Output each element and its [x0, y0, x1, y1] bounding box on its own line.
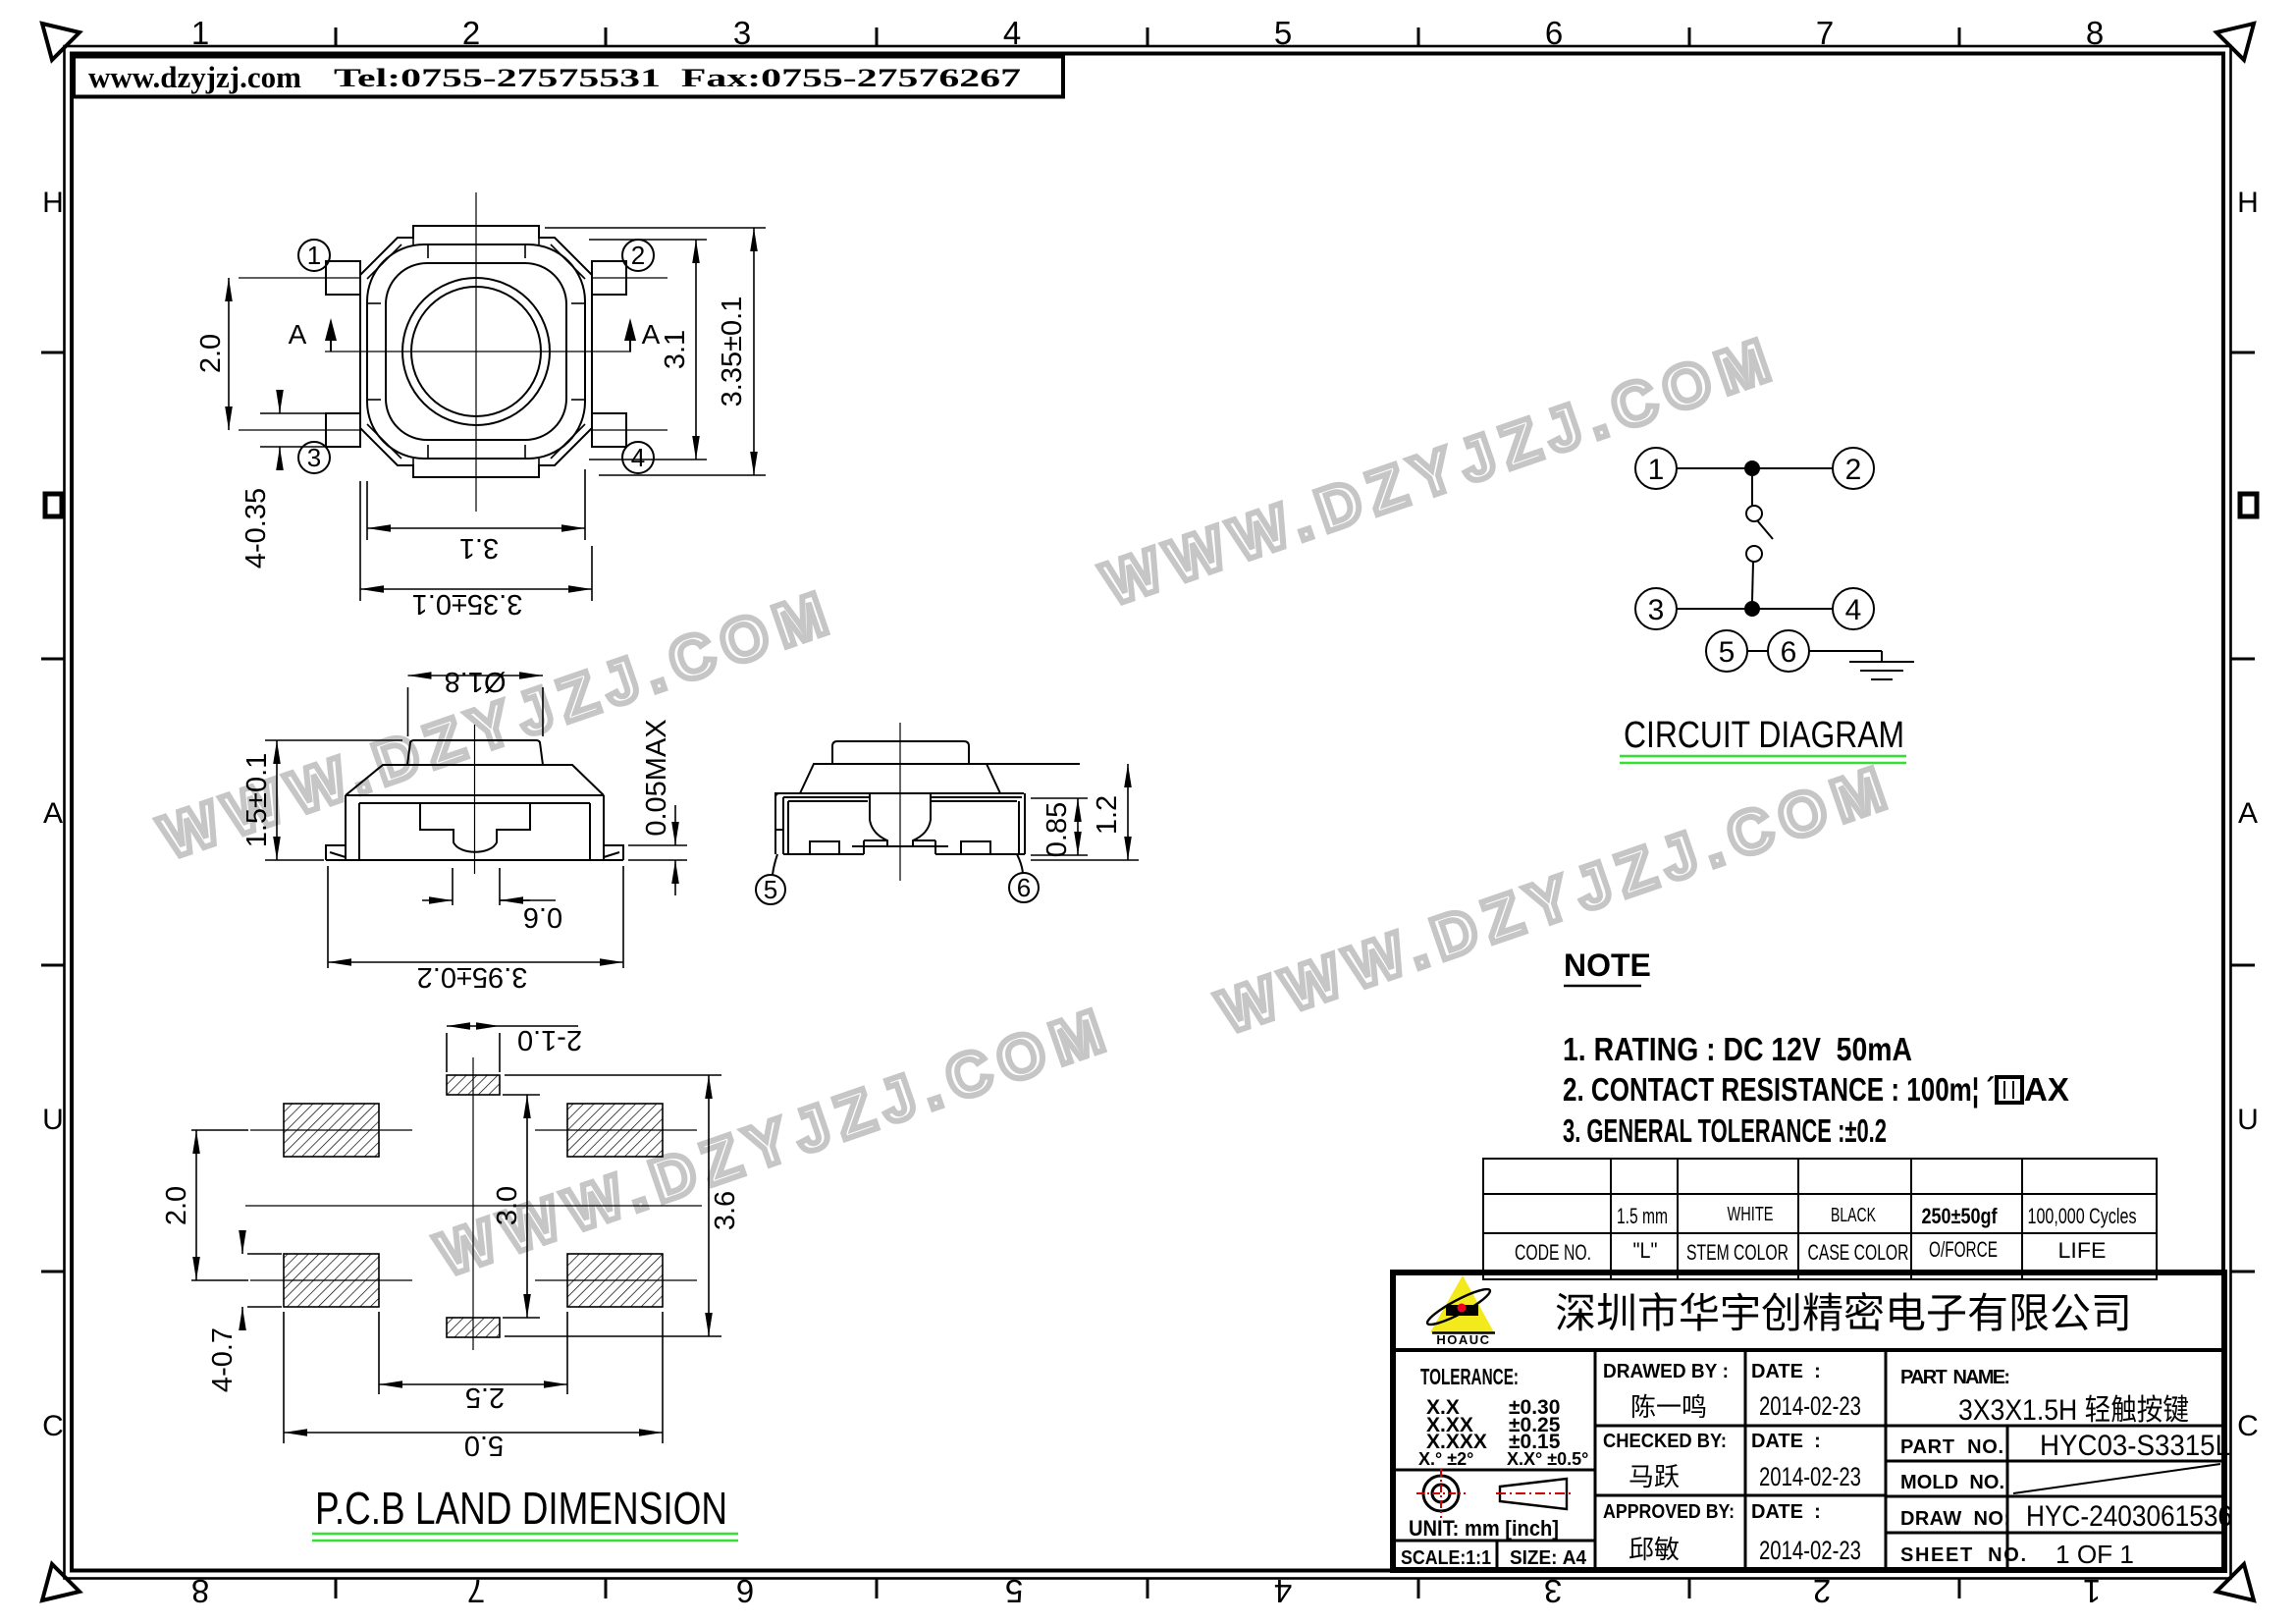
svg-text:1.5 mm: 1.5 mm — [1617, 1204, 1668, 1228]
svg-text:A: A — [43, 797, 63, 830]
svg-text:7: 7 — [1816, 15, 1834, 51]
svg-text:4-0.7: 4-0.7 — [207, 1327, 239, 1392]
svg-text:3: 3 — [1544, 1573, 1562, 1609]
svg-text:3: 3 — [733, 15, 751, 51]
svg-text:2-1.0: 2-1.0 — [517, 1024, 582, 1056]
svg-text:Ø1.8: Ø1.8 — [445, 666, 507, 697]
svg-text:8: 8 — [191, 1573, 209, 1609]
svg-text:BLACK: BLACK — [1831, 1205, 1876, 1226]
svg-text:6: 6 — [1545, 15, 1563, 51]
svg-text:CODE NO.: CODE NO. — [1515, 1240, 1591, 1265]
svg-text:0.85: 0.85 — [1041, 802, 1073, 857]
svg-text:HYC-2403061536: HYC-2403061536 — [2026, 1500, 2232, 1533]
svg-text:STEM COLOR: STEM COLOR — [1686, 1240, 1789, 1265]
svg-text:5: 5 — [1719, 636, 1735, 669]
svg-text:6: 6 — [1781, 636, 1797, 669]
svg-text:1 OF 1: 1 OF 1 — [2056, 1540, 2134, 1569]
svg-text:2.0: 2.0 — [161, 1186, 192, 1225]
svg-text:1: 1 — [191, 15, 209, 51]
svg-text:O/FORCE: O/FORCE — [1929, 1237, 1998, 1262]
svg-text:PART NO.: PART NO. — [1900, 1436, 2003, 1458]
svg-text:2014-02-23: 2014-02-23 — [1759, 1536, 1861, 1565]
svg-text:H: H — [2237, 187, 2259, 219]
svg-text:3: 3 — [1648, 594, 1665, 626]
svg-text:2: 2 — [631, 241, 645, 270]
svg-text:4-0.35: 4-0.35 — [240, 488, 272, 568]
svg-text:3.95±0.2: 3.95±0.2 — [417, 961, 528, 993]
svg-text:马跃: 马跃 — [1629, 1462, 1680, 1491]
svg-text:1.5±0.1: 1.5±0.1 — [241, 753, 273, 848]
svg-text:Tel:0755-27575531 Fax:0755-27: Tel:0755-27575531 Fax:0755-27576267 — [334, 64, 1021, 92]
svg-text:2: 2 — [1845, 454, 1862, 486]
svg-text:2014-02-23: 2014-02-23 — [1759, 1391, 1861, 1421]
svg-text:1: 1 — [2083, 1573, 2101, 1609]
svg-text:4: 4 — [1003, 15, 1021, 51]
svg-text:2: 2 — [1813, 1573, 1831, 1609]
svg-text:MOLD NO.: MOLD NO. — [1900, 1472, 2004, 1493]
svg-text:U: U — [42, 1104, 64, 1136]
svg-text:3.1: 3.1 — [459, 532, 499, 564]
svg-text:3. GENERAL TOLERANCE :±0.2: 3. GENERAL TOLERANCE :±0.2 — [1563, 1112, 1887, 1149]
svg-text:2: 2 — [462, 15, 480, 51]
svg-text:C: C — [2237, 1410, 2259, 1442]
svg-text:0.6: 0.6 — [523, 901, 562, 933]
svg-text:2014-02-23: 2014-02-23 — [1759, 1462, 1861, 1491]
svg-text:X.° ±2°: X.° ±2° — [1418, 1449, 1473, 1469]
svg-text:SIZE: A4: SIZE: A4 — [1510, 1547, 1587, 1569]
svg-text:5: 5 — [1274, 15, 1292, 51]
svg-text:CASE COLOR: CASE COLOR — [1808, 1240, 1909, 1265]
svg-text:3.1: 3.1 — [660, 330, 691, 369]
svg-text:APPROVED BY:: APPROVED BY: — [1603, 1501, 1735, 1523]
svg-text:邱敏: 邱敏 — [1629, 1535, 1680, 1564]
svg-text:6: 6 — [736, 1573, 754, 1609]
svg-text:A: A — [642, 319, 661, 350]
svg-text:C: C — [42, 1410, 64, 1442]
svg-text:U: U — [2237, 1104, 2259, 1136]
svg-text:6: 6 — [1017, 873, 1031, 902]
svg-text:P.C.B LAND DIMENSION: P.C.B LAND DIMENSION — [315, 1483, 727, 1534]
svg-text:5: 5 — [1005, 1573, 1023, 1609]
svg-text:DATE :: DATE : — [1751, 1501, 1821, 1523]
svg-text:2.5: 2.5 — [465, 1381, 505, 1413]
svg-text:1: 1 — [1648, 454, 1665, 486]
svg-text:HYC03-S3315L: HYC03-S3315L — [2040, 1430, 2230, 1462]
svg-text:3.0: 3.0 — [492, 1186, 523, 1225]
svg-text:7: 7 — [467, 1573, 485, 1609]
svg-text:PART NAME:: PART NAME: — [1900, 1367, 2010, 1388]
svg-text:SHEET NO.: SHEET NO. — [1900, 1544, 2026, 1566]
svg-text:AX: AX — [2024, 1071, 2069, 1108]
svg-text:1. RATING : DC 12V 50mA: 1. RATING : DC 12V 50mA — [1563, 1031, 1912, 1067]
svg-text:深圳市华宇创精密电子有限公司: 深圳市华宇创精密电子有限公司 — [1555, 1290, 2132, 1336]
svg-text:3.35±0.1: 3.35±0.1 — [717, 297, 748, 407]
svg-text:4: 4 — [1845, 594, 1862, 626]
svg-text:NOTE: NOTE — [1564, 947, 1651, 983]
svg-text:X.X° ±0.5°: X.X° ±0.5° — [1507, 1449, 1588, 1469]
svg-text:www.dzyjzj.com: www.dzyjzj.com — [88, 60, 301, 94]
svg-text:0.05MAX: 0.05MAX — [641, 719, 672, 836]
svg-text:DRAW NO:: DRAW NO: — [1900, 1508, 2010, 1530]
svg-text:1.2: 1.2 — [1092, 795, 1123, 835]
svg-text:DATE :: DATE : — [1751, 1431, 1821, 1452]
svg-text:100,000 Cycles: 100,000 Cycles — [2028, 1204, 2137, 1228]
svg-text:2. CONTACT RESISTANCE : 100m¦: 2. CONTACT RESISTANCE : 100m¦ ´ — [1563, 1071, 1995, 1108]
svg-text:5: 5 — [764, 875, 777, 904]
svg-text:CIRCUIT DIAGRAM: CIRCUIT DIAGRAM — [1624, 715, 1904, 756]
svg-text:"L": "L" — [1633, 1238, 1658, 1263]
svg-text:H: H — [42, 187, 64, 219]
svg-text:3.35±0.1: 3.35±0.1 — [412, 588, 523, 620]
svg-text:A: A — [2238, 797, 2258, 830]
svg-text:LIFE: LIFE — [2058, 1238, 2107, 1263]
svg-text:DRAWED BY :: DRAWED BY : — [1603, 1361, 1729, 1382]
svg-text:CHECKED BY:: CHECKED BY: — [1603, 1431, 1727, 1452]
svg-text:4: 4 — [1274, 1573, 1292, 1609]
svg-text:3.6: 3.6 — [710, 1191, 741, 1230]
svg-text:UNIT: mm [inch]: UNIT: mm [inch] — [1409, 1516, 1559, 1541]
svg-text:TOLERANCE:: TOLERANCE: — [1420, 1364, 1519, 1389]
svg-text:DATE :: DATE : — [1751, 1361, 1821, 1382]
svg-text:WHITE: WHITE — [1728, 1204, 1774, 1225]
svg-text:5.0: 5.0 — [464, 1430, 504, 1461]
svg-text:1: 1 — [307, 241, 321, 270]
svg-text:3X3X1.5H 轻触按键: 3X3X1.5H 轻触按键 — [1958, 1394, 2189, 1427]
svg-text:4: 4 — [631, 443, 645, 472]
svg-text:250±50gf: 250±50gf — [1922, 1204, 1999, 1228]
svg-text:8: 8 — [2086, 15, 2104, 51]
svg-text:SCALE:1:1: SCALE:1:1 — [1401, 1547, 1491, 1569]
svg-text:A: A — [289, 319, 307, 350]
svg-text:陈一鸣: 陈一鸣 — [1630, 1392, 1707, 1422]
svg-text:2.0: 2.0 — [195, 334, 227, 373]
svg-text:HOAUC: HOAUC — [1436, 1332, 1490, 1347]
